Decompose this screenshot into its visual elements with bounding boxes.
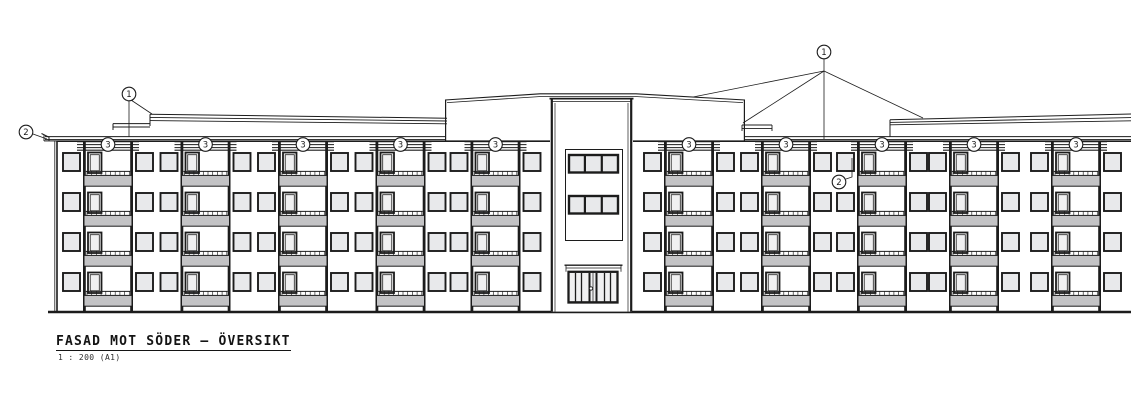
balcony-door-pane [478, 275, 487, 291]
window [524, 273, 541, 291]
balcony-bay [943, 141, 1005, 312]
window [234, 193, 251, 211]
balcony-spandrel [762, 175, 810, 186]
window [717, 153, 734, 171]
marker-label: 3 [879, 141, 884, 151]
marker-label: 3 [398, 141, 403, 151]
balcony-door-pane [285, 235, 294, 251]
balcony-bay [658, 141, 720, 312]
window [1104, 273, 1121, 291]
window [910, 193, 927, 211]
window [644, 193, 661, 211]
balcony-spandrel [762, 295, 810, 306]
window [331, 233, 348, 251]
detail-marker-balcony: 3 [394, 138, 408, 152]
balcony-door-pane [671, 275, 680, 291]
balcony-spandrel [1052, 295, 1100, 306]
window [524, 193, 541, 211]
balcony-spandrel [84, 215, 132, 226]
balcony-spandrel [950, 175, 998, 186]
window [429, 153, 446, 171]
balcony-spandrel [950, 255, 998, 266]
window [814, 273, 831, 291]
balcony-door-pane [285, 275, 294, 291]
window [644, 273, 661, 291]
balcony-spandrel [762, 255, 810, 266]
balcony-spandrel [377, 175, 425, 186]
drawing-scale: 1 : 200 (A1) [58, 353, 291, 362]
marker-label: 3 [300, 141, 305, 151]
window [161, 233, 178, 251]
window [161, 193, 178, 211]
balcony-spandrel [1052, 215, 1100, 226]
stairwell-window [569, 155, 618, 173]
balcony-spandrel [84, 255, 132, 266]
balcony-door-pane [478, 155, 487, 171]
window [451, 273, 468, 291]
window [136, 233, 153, 251]
balcony-spandrel [1052, 255, 1100, 266]
balcony-door-pane [383, 155, 392, 171]
marker-label: 3 [105, 141, 110, 151]
balcony-spandrel [279, 215, 327, 226]
marker-label: 2 [836, 178, 841, 188]
balcony-door-pane [1058, 155, 1067, 171]
window [234, 153, 251, 171]
window [1031, 193, 1048, 211]
balcony-door-pane [671, 195, 680, 211]
balcony-spandrel [762, 215, 810, 226]
balcony-spandrel [182, 255, 230, 266]
balcony-spandrel [182, 295, 230, 306]
window [741, 153, 758, 171]
balcony-door-pane [956, 275, 965, 291]
window [451, 153, 468, 171]
balcony-door-pane [478, 195, 487, 211]
window [929, 233, 946, 251]
marker-label: 3 [686, 141, 691, 151]
window [258, 273, 275, 291]
window [356, 193, 373, 211]
balcony-bay [1045, 141, 1107, 312]
door-handle [589, 287, 592, 290]
detail-marker-balcony: 3 [779, 138, 793, 152]
marker-label: 3 [203, 141, 208, 151]
balcony-spandrel [279, 295, 327, 306]
balcony-door-pane [188, 195, 197, 211]
window [1002, 153, 1019, 171]
balcony-spandrel [377, 295, 425, 306]
balcony-door-pane [90, 235, 99, 251]
balcony-door-pane [1058, 195, 1067, 211]
balcony-spandrel [665, 295, 713, 306]
balcony-door-pane [671, 155, 680, 171]
balcony-bay [755, 141, 817, 312]
window [451, 233, 468, 251]
window [837, 193, 854, 211]
balcony-door-pane [1058, 275, 1067, 291]
balcony-bay [370, 141, 432, 312]
balcony-spandrel [665, 175, 713, 186]
window [741, 233, 758, 251]
balcony-bay [851, 141, 913, 312]
window [1031, 233, 1048, 251]
window [63, 193, 80, 211]
leader-line [824, 71, 923, 118]
drawing-title: FASAD MOT SÖDER – ÖVERSIKT [56, 334, 291, 351]
balcony-door-pane [90, 275, 99, 291]
window [258, 153, 275, 171]
window [331, 153, 348, 171]
balcony-door-pane [864, 235, 873, 251]
balcony-door-pane [90, 155, 99, 171]
window [331, 273, 348, 291]
balcony-spandrel [279, 255, 327, 266]
window [814, 193, 831, 211]
window [136, 153, 153, 171]
balcony-spandrel [472, 215, 520, 226]
marker-label: 3 [783, 141, 788, 151]
detail-marker-window-right: 2 [832, 175, 846, 189]
balcony-door-pane [1058, 235, 1067, 251]
balcony-spandrel [950, 295, 998, 306]
balcony-bay [272, 141, 334, 312]
detail-marker-roof-right: 1 [817, 45, 831, 59]
balcony-spandrel [279, 175, 327, 186]
balcony-door-pane [285, 155, 294, 171]
window [258, 193, 275, 211]
balcony-door-pane [383, 195, 392, 211]
window [429, 193, 446, 211]
window [451, 193, 468, 211]
detail-marker-balcony: 3 [489, 138, 503, 152]
window [63, 273, 80, 291]
balcony-spandrel [1052, 175, 1100, 186]
balcony-door-pane [90, 195, 99, 211]
window [814, 153, 831, 171]
balcony-spandrel [377, 215, 425, 226]
balcony-spandrel [665, 255, 713, 266]
detail-marker-balcony: 3 [101, 138, 115, 152]
balcony-door-pane [383, 275, 392, 291]
detail-marker-roof-left: 1 [122, 87, 136, 101]
window [1002, 193, 1019, 211]
marker-label: 3 [1073, 141, 1078, 151]
parapet-left [150, 121, 447, 124]
marker-label: 3 [971, 141, 976, 151]
window [717, 233, 734, 251]
balcony-spandrel [858, 175, 906, 186]
window [234, 233, 251, 251]
balcony-door-pane [864, 195, 873, 211]
detail-marker-balcony: 3 [875, 138, 889, 152]
window [910, 153, 927, 171]
window [644, 153, 661, 171]
window [356, 273, 373, 291]
balcony-door-pane [188, 155, 197, 171]
balcony-spandrel [858, 215, 906, 226]
window [234, 273, 251, 291]
window [814, 233, 831, 251]
balcony-spandrel [472, 175, 520, 186]
window [1002, 273, 1019, 291]
detail-marker-balcony: 3 [296, 138, 310, 152]
balcony-bay [465, 141, 527, 312]
balcony-door-pane [864, 275, 873, 291]
window [524, 233, 541, 251]
window [910, 233, 927, 251]
leader-line [131, 100, 152, 114]
balcony-door-pane [478, 235, 487, 251]
balcony-door-pane [864, 155, 873, 171]
window [429, 273, 446, 291]
balcony-door-pane [768, 195, 777, 211]
detail-marker-balcony: 3 [682, 138, 696, 152]
balcony-spandrel [84, 295, 132, 306]
window [356, 153, 373, 171]
detail-marker-balcony: 3 [967, 138, 981, 152]
balcony-bay [77, 141, 139, 312]
balcony-spandrel [84, 175, 132, 186]
balcony-spandrel [858, 255, 906, 266]
marker-label: 2 [23, 128, 28, 138]
window [524, 153, 541, 171]
balcony-door-pane [768, 275, 777, 291]
window [161, 273, 178, 291]
marker-label: 1 [821, 48, 826, 58]
window [63, 233, 80, 251]
balcony-spandrel [472, 295, 520, 306]
detail-marker-gutter-left: 2 [19, 125, 33, 139]
balcony-door-pane [383, 235, 392, 251]
drawing-sheet: 12123333333333 FASAD MOT SÖDER – ÖVERSIK… [0, 0, 1131, 411]
window [741, 193, 758, 211]
balcony-spandrel [472, 255, 520, 266]
window [717, 273, 734, 291]
balcony-door-pane [956, 235, 965, 251]
window [837, 233, 854, 251]
detail-marker-balcony: 3 [199, 138, 213, 152]
window [161, 153, 178, 171]
balcony-door-pane [188, 275, 197, 291]
stairwell-window [569, 196, 618, 214]
window [717, 193, 734, 211]
balcony-door-pane [768, 235, 777, 251]
balcony-door-pane [956, 155, 965, 171]
balcony-spandrel [182, 175, 230, 186]
window [429, 233, 446, 251]
title-block: FASAD MOT SÖDER – ÖVERSIKT 1 : 200 (A1) [56, 330, 291, 362]
balcony-spandrel [950, 215, 998, 226]
balcony-door-pane [285, 195, 294, 211]
balcony-door-pane [956, 195, 965, 211]
window [644, 233, 661, 251]
window [929, 193, 946, 211]
window [1104, 193, 1121, 211]
window [1104, 153, 1121, 171]
window [741, 273, 758, 291]
window [331, 193, 348, 211]
window [929, 153, 946, 171]
window [929, 273, 946, 291]
window [1031, 153, 1048, 171]
window [1002, 233, 1019, 251]
window [837, 273, 854, 291]
balcony-spandrel [858, 295, 906, 306]
balcony-door-pane [188, 235, 197, 251]
marker-label: 3 [493, 141, 498, 151]
window [136, 193, 153, 211]
window [1104, 233, 1121, 251]
window [136, 273, 153, 291]
balcony-bay [175, 141, 237, 312]
balcony-door-pane [671, 235, 680, 251]
balcony-door-pane [768, 155, 777, 171]
window [837, 153, 854, 171]
detail-marker-balcony: 3 [1069, 138, 1083, 152]
marker-label: 1 [126, 90, 131, 100]
window [356, 233, 373, 251]
balcony-spandrel [182, 215, 230, 226]
window [63, 153, 80, 171]
window [258, 233, 275, 251]
balcony-spandrel [377, 255, 425, 266]
parapet-right [890, 114, 1131, 120]
balcony-spandrel [665, 215, 713, 226]
window [1031, 273, 1048, 291]
window [910, 273, 927, 291]
